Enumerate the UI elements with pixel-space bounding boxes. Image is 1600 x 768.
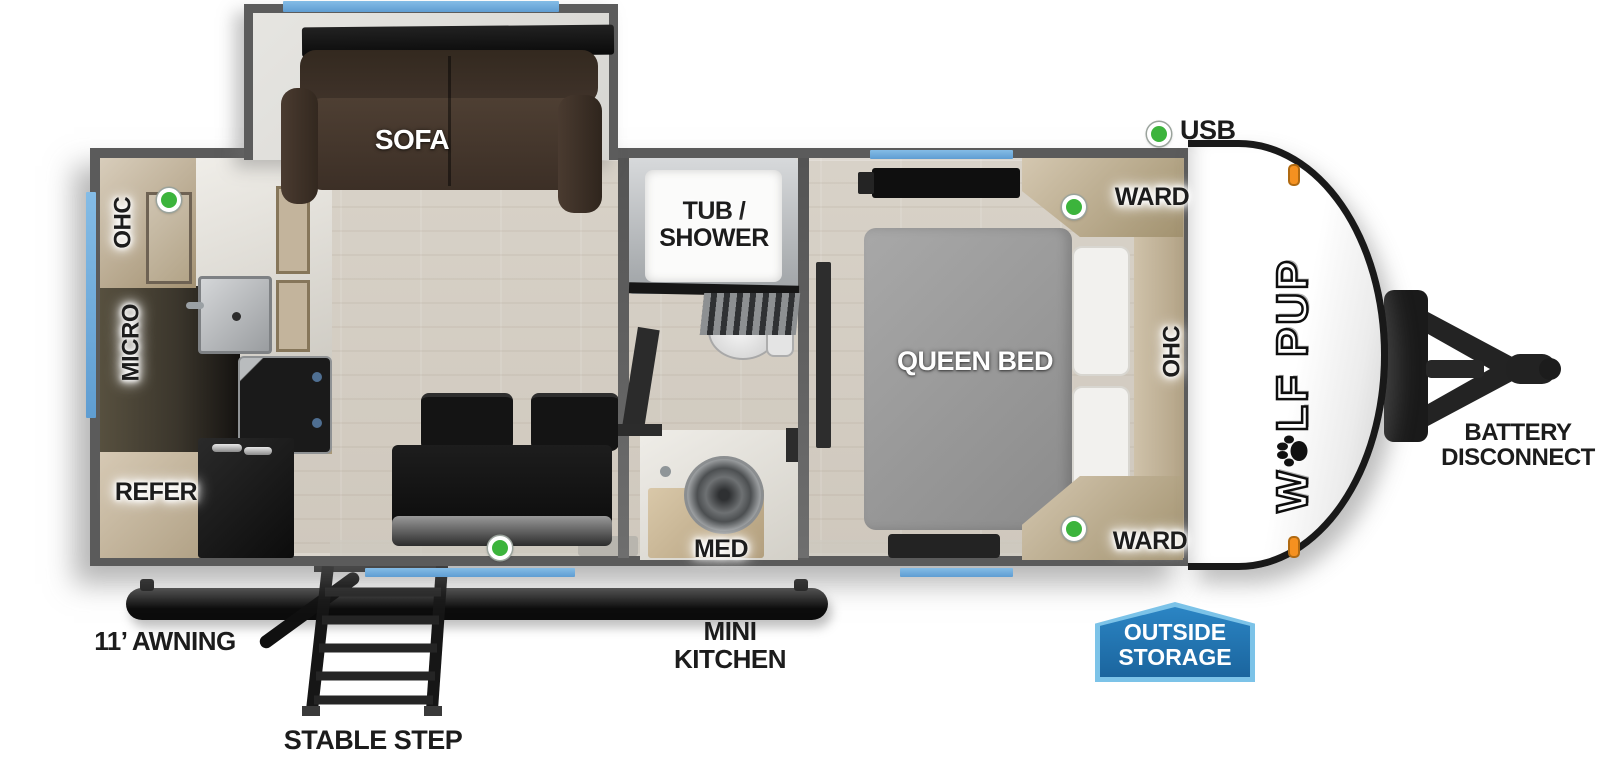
outside-storage-badge: OUTSIDE STORAGE bbox=[1095, 602, 1255, 682]
mini-kitchen-sink bbox=[684, 456, 764, 534]
queen-bed bbox=[864, 228, 1072, 530]
sofa-label: SOFA bbox=[352, 125, 472, 155]
awning-nub bbox=[794, 579, 808, 591]
dinette-chair bbox=[531, 393, 619, 451]
battery-disconnect-label: BATTERY DISCONNECT bbox=[1438, 420, 1598, 471]
tv-bracket bbox=[858, 172, 874, 194]
paw-icon bbox=[1275, 434, 1311, 468]
marker-light-icon bbox=[1288, 164, 1300, 186]
ward-bottom-label: WARD bbox=[1100, 528, 1200, 555]
sink-drain bbox=[232, 312, 241, 321]
dinette-chair bbox=[421, 393, 513, 451]
usb-dot-icon bbox=[1062, 517, 1086, 541]
bed-bench bbox=[888, 534, 1000, 558]
window-slideout bbox=[283, 1, 559, 12]
sofa-arm bbox=[281, 88, 318, 204]
window-bedroom-top bbox=[870, 150, 1013, 159]
brand-text-end: LF PUP bbox=[1268, 258, 1318, 432]
refrigerator-handle bbox=[244, 447, 272, 455]
pillow bbox=[1072, 246, 1130, 376]
usb-dot-icon bbox=[157, 188, 181, 212]
ward-top-label: WARD bbox=[1102, 184, 1202, 211]
bedroom-ohc-label: OHC bbox=[1159, 312, 1184, 392]
outside-storage-label: OUTSIDE STORAGE bbox=[1118, 620, 1231, 678]
refrigerator-handle bbox=[212, 444, 242, 452]
usb-dot-icon bbox=[488, 536, 512, 560]
tub-shower-label: TUB / SHOWER bbox=[644, 198, 784, 251]
shower-door-glass bbox=[700, 293, 800, 335]
refer-label: REFER bbox=[96, 479, 216, 506]
sink-faucet bbox=[186, 302, 204, 309]
sofa-cushion-split bbox=[448, 56, 451, 186]
mini-kitchen-label: MINI KITCHEN bbox=[650, 618, 810, 673]
range-knob bbox=[312, 418, 322, 428]
awning-label: 11’ AWNING bbox=[85, 628, 245, 656]
brand-logo: W LF PUP bbox=[1265, 215, 1321, 555]
usb-legend-label: USB bbox=[1180, 116, 1250, 145]
bath-right-wall bbox=[798, 158, 809, 558]
window-rear bbox=[86, 192, 96, 418]
awning-nub bbox=[140, 579, 154, 591]
micro-label: MICRO bbox=[118, 288, 143, 398]
range-knob bbox=[312, 372, 322, 382]
usb-dot-icon bbox=[1062, 195, 1086, 219]
wall-stub bbox=[786, 428, 798, 462]
brand-text-start: W bbox=[1268, 468, 1318, 513]
outside-storage-badge-inner: OUTSIDE STORAGE bbox=[1100, 607, 1250, 677]
upper-cabinet-door bbox=[276, 280, 310, 352]
queen-bed-label: QUEEN BED bbox=[895, 347, 1055, 376]
med-label: MED bbox=[671, 536, 771, 563]
bath-left-wall bbox=[618, 158, 629, 558]
wall-stub bbox=[618, 424, 662, 436]
mini-kitchen-faucet bbox=[660, 466, 671, 477]
sofa-arm bbox=[558, 95, 602, 213]
entry-door-strip bbox=[365, 568, 575, 577]
bedroom-door bbox=[816, 262, 831, 448]
rv-floorplan: OHC MICRO REFER TUB / SHOWER MED QUEEN B… bbox=[0, 0, 1600, 768]
stable-step-label: STABLE STEP bbox=[283, 726, 463, 755]
kitchen-ohc-label: OHC bbox=[110, 183, 135, 263]
usb-legend-dot-icon bbox=[1147, 122, 1171, 146]
tv bbox=[872, 168, 1020, 198]
entry-step-ladder bbox=[292, 560, 464, 718]
window-bedroom-bottom bbox=[900, 568, 1013, 577]
